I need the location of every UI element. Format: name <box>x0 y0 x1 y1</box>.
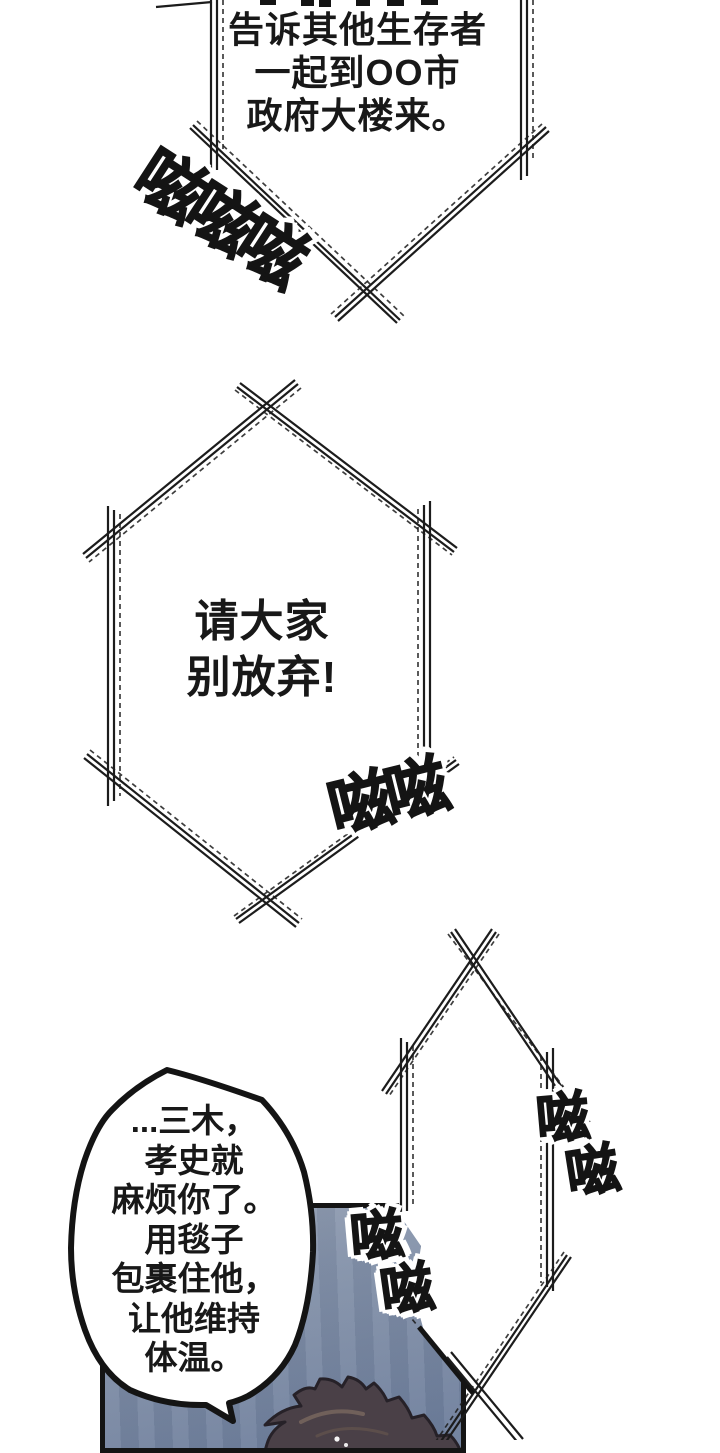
sfx-static-right-lower: 嗞 <box>562 1141 618 1202</box>
dialogue-line: 体温。 <box>84 1338 304 1378</box>
speech-bubble-text: ...三木， 孝史就 麻烦你了。 用毯子 包裹住他， 让他维持 体温。 <box>84 1101 304 1378</box>
comic-page: { "page": { "background": "#ffffff", "in… <box>0 0 720 1440</box>
dialogue-line: 包裹住他， <box>84 1259 304 1299</box>
top-broadcast-bubble <box>156 0 549 323</box>
dialogue-line: 用毯子 <box>84 1220 304 1260</box>
dialogue-line: 孝史就 <box>84 1141 304 1181</box>
sfx-static-panel-lower: 嗞 <box>377 1260 432 1320</box>
sfx-static-panel-upper: 嗞 <box>348 1208 401 1266</box>
sfx-static-right-upper: 嗞 <box>534 1090 587 1148</box>
dialogue-line: 让他维持 <box>84 1299 304 1339</box>
middle-broadcast-bubble <box>83 380 459 927</box>
dialogue-line: 麻烦你了。 <box>84 1180 304 1220</box>
dialogue-line: ...三木， <box>84 1101 304 1141</box>
